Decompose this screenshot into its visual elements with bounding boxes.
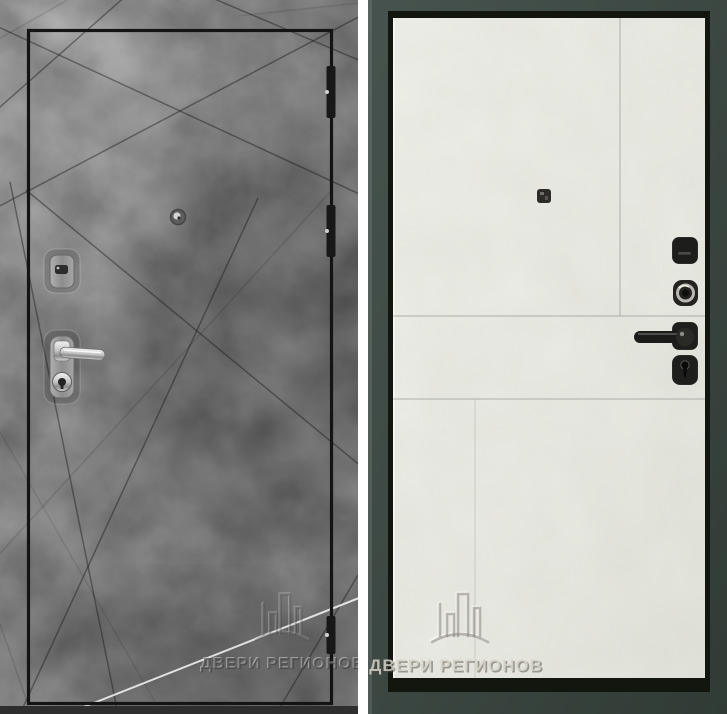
lock-cylinder-interior xyxy=(672,355,698,385)
leaf-edge-light xyxy=(393,18,395,678)
decorative-keyhole xyxy=(673,280,698,306)
left-door-exterior-panel: ДВЕРИ РЕГИОНОВ ДВЕРИ РЕГИОНОВ xyxy=(0,0,358,714)
peephole-interior xyxy=(537,189,551,203)
keyhole-escutcheon xyxy=(44,249,80,293)
right-door-interior-panel: ДВЕРИ РЕГИОНОВ ДВЕРИ РЕГИОНОВ xyxy=(368,0,727,714)
hinge-top-pin xyxy=(325,90,329,94)
exterior-door-graphic: ДВЕРИ РЕГИОНОВ ДВЕРИ РЕГИОНОВ xyxy=(0,0,358,714)
bottom-shadow-strip xyxy=(0,706,358,714)
lock-cylinder-exterior xyxy=(53,373,72,392)
hinge-bottom-pin xyxy=(325,633,329,637)
leaf-texture xyxy=(393,18,705,678)
panel-gap xyxy=(358,0,368,714)
interior-door-graphic: ДВЕРИ РЕГИОНОВ ДВЕРИ РЕГИОНОВ xyxy=(368,0,727,714)
peephole-exterior xyxy=(171,210,186,225)
hinge-middle-pin xyxy=(325,229,329,233)
frame-edge-highlight xyxy=(368,0,372,714)
watermark-text: ДВЕРИ РЕГИОНОВ xyxy=(369,656,543,675)
watermark-text: ДВЕРИ РЕГИОНОВ xyxy=(201,656,358,673)
thumbturn-lock xyxy=(672,237,698,264)
